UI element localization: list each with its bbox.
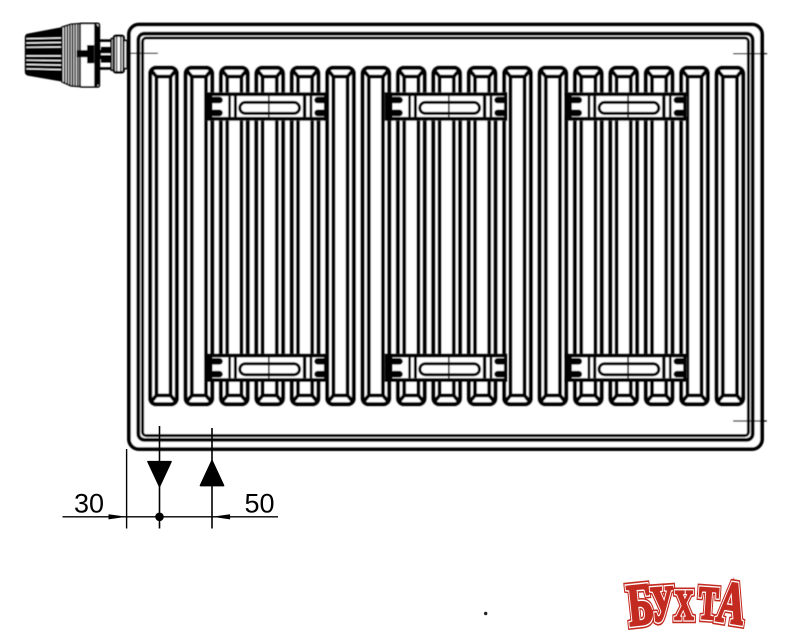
svg-text:30: 30 xyxy=(74,489,104,519)
svg-text:У: У xyxy=(649,576,676,633)
svg-text:50: 50 xyxy=(244,489,274,519)
svg-text:Х: Х xyxy=(674,583,693,629)
